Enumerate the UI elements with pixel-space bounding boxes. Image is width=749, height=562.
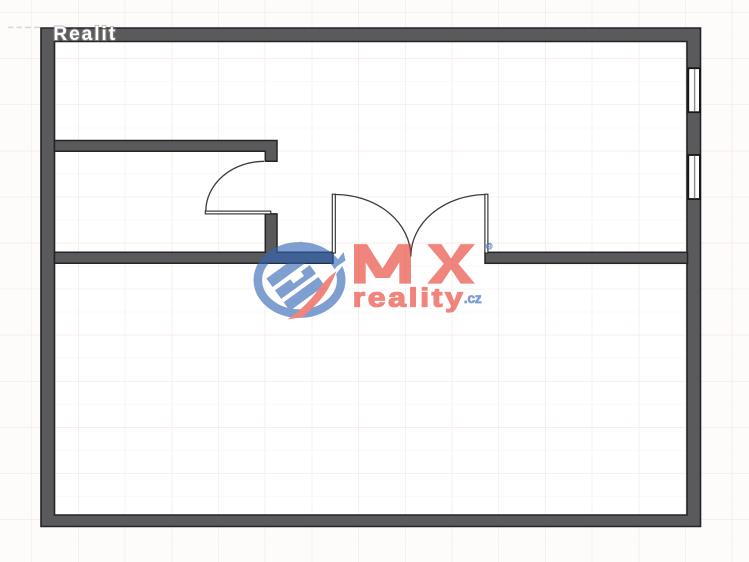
svg-text:Realit: Realit	[53, 24, 117, 45]
svg-text:reality: reality	[353, 284, 466, 313]
svg-text:.cz: .cz	[464, 290, 482, 306]
